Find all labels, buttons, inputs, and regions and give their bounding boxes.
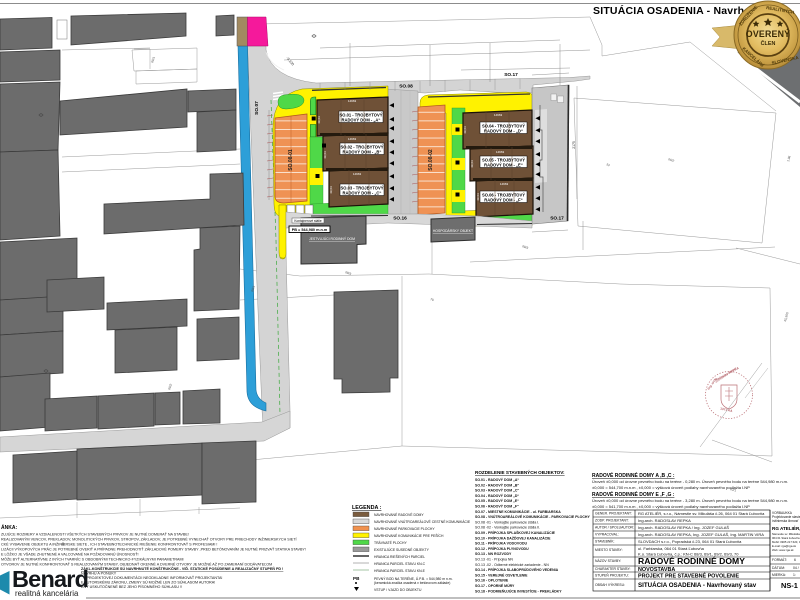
svg-text:JESTVUJÚCI RODINNÝ DOM: JESTVUJÚCI RODINNÝ DOM — [309, 236, 355, 241]
svg-text:Ing.arch. RADOSLAV REPKA / Ing: Ing.arch. RADOSLAV REPKA / Ing. JOZEF GU… — [638, 525, 729, 530]
svg-text:SO.17: SO.17 — [504, 72, 518, 78]
svg-text:1:: 1: — [793, 573, 796, 577]
svg-text:DÁTUM:: DÁTUM: — [772, 566, 785, 570]
svg-text:V PROJEKTOVEJ DOKUMENTÁCII NEO: V PROJEKTOVEJ DOKUMENTÁCII NEODKLADNE IN… — [83, 575, 222, 580]
svg-text:SO.01 - RADOVÝ DOM „A“: SO.01 - RADOVÝ DOM „A“ — [475, 477, 519, 482]
svg-text:ZÁKL.KONŠTRUKCIE SÚ NAVRHNUTÉ: ZÁKL.KONŠTRUKCIE SÚ NAVRHNUTÉ KONŠTRUKČN… — [81, 566, 283, 571]
svg-text:SO.17: SO.17 — [550, 216, 564, 222]
svg-text:REALIZOVANÝM VENCOV, PREKLADOV: REALIZOVANÝM VENCOV, PREKLADOV, MONOLITI… — [1, 537, 297, 542]
svg-text:49,63: 49,63 — [476, 193, 480, 201]
svg-text:ZODP. PROJEKTANT:: ZODP. PROJEKTANT: — [595, 519, 629, 523]
svg-text:SO.16: SO.16 — [393, 216, 407, 222]
svg-text:SO.05 - RADOVÝ DOM „E“: SO.05 - RADOVÝ DOM „E“ — [475, 498, 519, 503]
svg-text:(keramická značka osadená v be: (keramická značka osadená v betónovom zá… — [374, 581, 450, 585]
svg-text:SO.12 - PRÍPOJKA PLYNOVODU: SO.12 - PRÍPOJKA PLYNOVODU — [475, 546, 529, 551]
svg-text:ROZDELENIE STAVEBNÝCH OBJEKTOV: ROZDELENIE STAVEBNÝCH OBJEKTOV: — [475, 469, 565, 475]
svg-text:VSTUP / VJAZD DO OBJEKTU: VSTUP / VJAZD DO OBJEKTU — [374, 588, 422, 592]
svg-text:SO.14 - PRÍPOJKA SLABOPRÚDOVÉH: SO.14 - PRÍPOJKA SLABOPRÚDOVÉHO VEDENIA — [475, 567, 559, 572]
svg-text:PROJEKT PRE STAVEBNÉ POVOLENIE: PROJEKT PRE STAVEBNÉ POVOLENIE — [638, 572, 739, 580]
svg-text:OVERENÝ: OVERENÝ — [746, 28, 790, 39]
svg-text:NS-1: NS-1 — [781, 581, 798, 590]
svg-text:RADOVÝ DOM - „E“: RADOVÝ DOM - „E“ — [484, 162, 523, 167]
svg-text:MIESTO STAVBY:: MIESTO STAVBY: — [595, 548, 623, 552]
svg-text:Ing.arch. RADOSLAV REPKA: Ing.arch. RADOSLAV REPKA — [638, 518, 691, 523]
svg-text:STAVEBNÍK:: STAVEBNÍK: — [595, 540, 615, 544]
svg-text:SO.13 - NN ROZVODY: SO.13 - NN ROZVODY — [475, 552, 512, 556]
svg-text:14963: 14963 — [353, 172, 362, 176]
svg-text:ZUJÚCE ROZMERY A VZDIALENOSTI: ZUJÚCE ROZMERY A VZDIALENOSTI VŠETKÝCH S… — [1, 532, 189, 537]
svg-text:RADOVÉ RODINNÉ DOMY E ,F ,G :: RADOVÉ RODINNÉ DOMY E ,F ,G : — [592, 490, 675, 498]
svg-text:49,63: 49,63 — [323, 151, 327, 159]
svg-text:E AUTORSKÉMU ZÁKONU, ZMENY SÚ: E AUTORSKÉMU ZÁKONU, ZMENY SÚ MOŽNÉ LEN … — [81, 580, 215, 585]
svg-text:SO.16 - OPLOTENIE: SO.16 - OPLOTENIE — [475, 579, 509, 583]
svg-text:RADOVÝ DOM - „C“: RADOVÝ DOM - „C“ — [343, 190, 382, 195]
svg-text:SO.10 - PRÍPOJKA DAŽĎOVEJ KANA: SO.10 - PRÍPOJKA DAŽĎOVEJ KANALIZÁCIE — [475, 535, 551, 540]
svg-text:RG ATELIÉR,: RG ATELIÉR, — [772, 524, 800, 531]
svg-text:Úroveň ±0,000 od úrovne pevnéh: Úroveň ±0,000 od úrovne pevného bodu na … — [592, 498, 788, 503]
svg-text:14963: 14963 — [494, 113, 503, 117]
svg-text:49,63: 49,63 — [463, 126, 467, 134]
svg-text:HRANICA PARCIEL STAVU KN-E: HRANICA PARCIEL STAVU KN-E — [374, 569, 426, 573]
svg-text:ul. Farbiarska, 064 01 Stará Ľ: ul. Farbiarska, 064 01 Stará Ľubovňa — [638, 546, 705, 551]
svg-text:TRÁVNATÉ PLOCHY: TRÁVNATÉ PLOCHY — [374, 540, 407, 545]
svg-text:NÁZOV STAVBY:: NÁZOV STAVBY: — [595, 559, 621, 563]
svg-text:SO.18 - PODMIEŇUJÚCE INVESTÍCI: SO.18 - PODMIEŇUJÚCE INVESTÍCIE - PREKLÁ… — [475, 588, 562, 593]
svg-text:SO.07 - MIESTNE KOMUNIKÁCIE -: SO.07 - MIESTNE KOMUNIKÁCIE - ul. FARBIA… — [475, 509, 561, 514]
svg-text:SO.03 - RADOVÝ DOM „C“: SO.03 - RADOVÝ DOM „C“ — [475, 488, 519, 493]
svg-text:Kontajnerové státie: Kontajnerové státie — [294, 219, 322, 223]
svg-text:LIZÁCII VÝKOPOVÝCH PRÁC JE POT: LIZÁCII VÝKOPOVÝCH PRÁC JE POTREBNÉ OVER… — [1, 547, 306, 552]
svg-text:FORMÁT:: FORMÁT: — [772, 558, 787, 562]
svg-text:SO.08: SO.08 — [399, 84, 413, 90]
svg-text:OBSAH VÝKRESU:: OBSAH VÝKRESU: — [595, 583, 625, 587]
svg-text:NOVOSTAVBA: NOVOSTAVBA — [638, 567, 675, 573]
svg-text:SO.08 -01 - Vonkajšie parkova: SO.08 -01 - Vonkajšie parkovacie státia … — [475, 520, 539, 524]
svg-text:GENER. PROJEKTANT:: GENER. PROJEKTANT: — [595, 512, 632, 516]
svg-text:inžinierska činnosť: inžinierska činnosť — [772, 519, 799, 523]
svg-text:MÔŽE BYŤ ALTERNATÍVNE Z INÝCH: MÔŽE BYŤ ALTERNATÍVNE Z INÝCH TVARNÍC S … — [1, 557, 184, 562]
svg-text:PB: PB — [353, 576, 360, 581]
svg-text:6: 6 — [794, 558, 796, 562]
svg-text:HRANICA PARCIEL STAVU KN-C: HRANICA PARCIEL STAVU KN-C — [374, 562, 426, 566]
svg-text:04 /: 04 / — [793, 566, 799, 570]
svg-text:14963: 14963 — [500, 182, 509, 186]
svg-text:NAVRHOVANÉ PARKOVACIE PLOCHY: NAVRHOVANÉ PARKOVACIE PLOCHY — [374, 526, 435, 531]
svg-text:SO.13 -02 - Odberné elektrick: SO.13 -02 - Odberné elektrické zariadeni… — [475, 563, 549, 567]
svg-text:NAVRHOVANÉ VNÚTROAREÁLOVÉ CEST: NAVRHOVANÉ VNÚTROAREÁLOVÉ CESTNÉ KOMUNIK… — [374, 519, 471, 524]
svg-text:14963: 14963 — [348, 99, 357, 103]
svg-text:±0,000 = 544,700 m.n.m , ±0,00: ±0,000 = 544,700 m.n.m , ±0,000 = výškov… — [592, 485, 750, 490]
svg-text:Web: www.rga.sk: Web: www.rga.sk — [772, 548, 794, 552]
svg-text:SO.09 - PRÍPOJKA SPLAŠKOVEJ KA: SO.09 - PRÍPOJKA SPLAŠKOVEJ KANALIZÁCIE — [475, 530, 556, 535]
svg-text:49,63: 49,63 — [470, 160, 474, 168]
svg-text:AUTOR / SPOLUAUTOR:: AUTOR / SPOLUAUTOR: — [595, 526, 634, 530]
svg-text:RADOVÝ DOM - „A“: RADOVÝ DOM - „A“ — [342, 117, 381, 122]
svg-text:CHARAKTER STAVBY:: CHARAKTER STAVBY: — [595, 567, 631, 571]
svg-text:NAVRHOVANÉ KOMUNIKÁCIE PRE PEŠ: NAVRHOVANÉ KOMUNIKÁCIE PRE PEŠÍCH — [374, 533, 444, 538]
svg-text:SO.06 - RADOVÝ DOM „F“: SO.06 - RADOVÝ DOM „F“ — [475, 504, 519, 509]
svg-text:RADOVÝ DOM - „B“: RADOVÝ DOM - „B“ — [343, 149, 382, 154]
svg-text:SO.02 - RADOVÝ DOM „B“: SO.02 - RADOVÝ DOM „B“ — [475, 482, 519, 487]
svg-text:STUPEŇ PROJEKTU:: STUPEŇ PROJEKTU: — [595, 574, 629, 578]
svg-text:SO.13 -01 - Prípojka NN: SO.13 -01 - Prípojka NN — [475, 558, 513, 562]
svg-text:RADOVÉ RODINNÉ DOMY A ,B ,C :: RADOVÉ RODINNÉ DOMY A ,B ,C : — [592, 471, 675, 479]
svg-text:RADOVÝ DOM - „D“: RADOVÝ DOM - „D“ — [484, 128, 523, 133]
svg-text:ENÝ USKUTOČNENÉ BEZ JEHO PÍSOM: ENÝ USKUTOČNENÉ BEZ JEHO PÍSOMNÉHO SÚHLA… — [81, 584, 182, 589]
svg-text:14963: 14963 — [348, 137, 357, 141]
svg-text:MIERKA:: MIERKA: — [772, 573, 786, 577]
svg-text:RADOVÝ DOM - „F“: RADOVÝ DOM - „F“ — [484, 197, 522, 202]
svg-text:SO.17 - OPORNÉ MÚRY: SO.17 - OPORNÉ MÚRY — [475, 583, 515, 588]
svg-text:SO.08 - VNÚTROAREÁLOVÉ KOMUNIK: SO.08 - VNÚTROAREÁLOVÉ KOMUNIKÁCIE - PAR… — [475, 514, 590, 519]
svg-text:HRANICA RIEŠENÝCH PARCIEL: HRANICA RIEŠENÝCH PARCIEL — [374, 554, 425, 559]
svg-text:VYPRACOVAL:: VYPRACOVAL: — [595, 533, 619, 537]
svg-text:SO.04 - RADOVÝ DOM „D“: SO.04 - RADOVÝ DOM „D“ — [475, 493, 519, 498]
svg-text:SITUÁCIA OSADENIA - Navrhovaný: SITUÁCIA OSADENIA - Navrhovaný stav — [638, 582, 757, 589]
svg-text:SO.08 -02 - Vonkajšie parkova: SO.08 -02 - Vonkajšie parkovacie státia … — [475, 526, 540, 530]
svg-text:±0,000 = 541,700 m.n.m , ±0,00: ±0,000 = 541,700 m.n.m , ±0,000 = výškov… — [592, 504, 750, 509]
svg-text:SO.07: SO.07 — [254, 101, 260, 115]
svg-text:NAVRHOVANÉ RADOVÉ DOMY: NAVRHOVANÉ RADOVÉ DOMY — [374, 512, 424, 517]
svg-text:14963: 14963 — [496, 150, 505, 154]
svg-text:PB = 544,980 m.n.m: PB = 544,980 m.n.m — [292, 228, 328, 232]
svg-text:SO.08-01: SO.08-01 — [288, 149, 294, 171]
svg-text:SO.11 - PRÍPOJKA VODOVODU: SO.11 - PRÍPOJKA VODOVODU — [475, 541, 527, 546]
svg-text:SO.15 - VEREJNÉ OSVETLENIE: SO.15 - VEREJNÉ OSVETLENIE — [475, 572, 528, 577]
svg-text:Úroveň ±0,000 od úrovne pevnéh: Úroveň ±0,000 od úrovne pevného bodu na … — [592, 479, 788, 484]
svg-text:SO.08-02: SO.08-02 — [428, 149, 434, 171]
svg-text:ČLEN: ČLEN — [761, 40, 776, 47]
svg-text:RADOVÉ RODINNÉ DOMY: RADOVÉ RODINNÉ DOMY — [638, 556, 745, 566]
svg-text:RG ATELIÉR, s.r.o., Námestie: RG ATELIÉR, s.r.o., Námestie sv. Mikuláš… — [638, 511, 765, 516]
svg-text:ÁNKA:: ÁNKA: — [1, 524, 17, 531]
svg-text:EXISTUJÚCE SUSEDNÉ OBJEKTY: EXISTUJÚCE SUSEDNÉ OBJEKTY — [374, 547, 430, 552]
svg-text:SLOVDACH s.r.o., Popradská č.2: SLOVDACH s.r.o., Popradská č.23, 064 01 … — [638, 539, 742, 544]
svg-text:HOSPODÁRSKY OBJEKT: HOSPODÁRSKY OBJEKT — [433, 229, 473, 233]
svg-text:49,63: 49,63 — [317, 116, 321, 124]
svg-text:2175: 2175 — [572, 141, 576, 149]
svg-text:E LÔŽKO JE VŠADE ZHUTNENÉ A VA: E LÔŽKO JE VŠADE ZHUTNENÉ A VALCOVANÉ NA… — [1, 552, 139, 557]
svg-text:LEGENDA :: LEGENDA : — [352, 505, 382, 511]
svg-text:CKÉ VYBAVENIE OBJEKTU A INŽINI: CKÉ VYBAVENIE OBJEKTU A INŽINIERSKE SIET… — [1, 542, 217, 547]
svg-text:Ing.arch. RADOSLAV REPKA, Ing.: Ing.arch. RADOSLAV REPKA, Ing. JOZEF GUL… — [638, 532, 764, 537]
svg-text:realitná kancelária: realitná kancelária — [15, 589, 79, 598]
svg-text:49,63: 49,63 — [329, 186, 333, 194]
